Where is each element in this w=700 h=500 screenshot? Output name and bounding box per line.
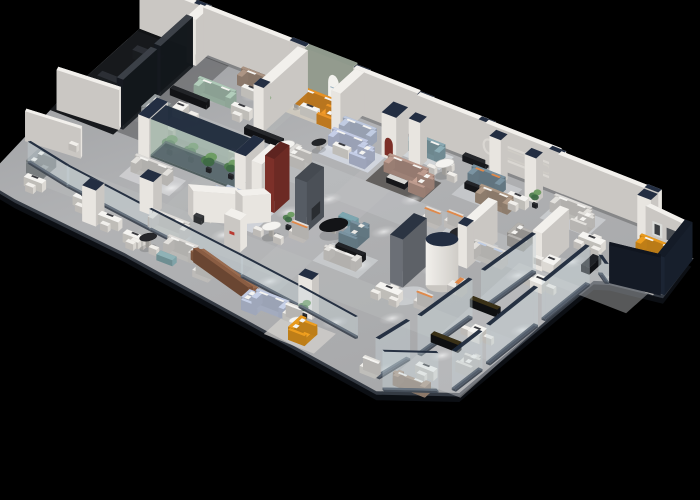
right-room-cap [458,217,474,269]
front-column-logo [224,208,247,252]
edge-glass-bottom [383,350,439,393]
column-navy-1 [409,112,427,167]
showroom-floorplan-render [0,0,700,500]
alcove-art-inner [655,224,660,236]
left-room-cap [254,78,271,132]
isometric-scene [0,0,700,500]
